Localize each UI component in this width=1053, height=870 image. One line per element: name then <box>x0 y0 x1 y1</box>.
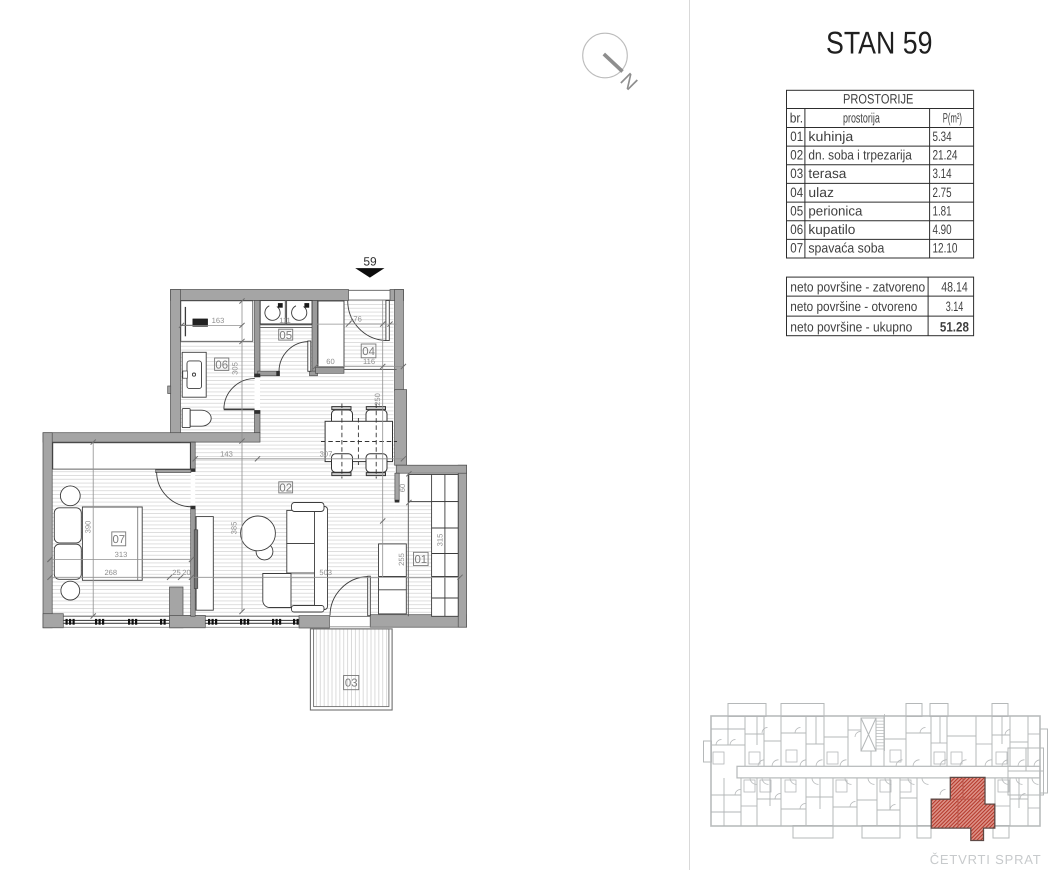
svg-text:01: 01 <box>790 129 803 144</box>
svg-text:03: 03 <box>790 166 803 181</box>
svg-text:313: 313 <box>115 550 128 559</box>
svg-text:ulaz: ulaz <box>808 185 834 200</box>
svg-text:dn. soba i trpezarija: dn. soba i trpezarija <box>808 148 912 163</box>
svg-text:02: 02 <box>790 148 803 163</box>
svg-text:STAN 59: STAN 59 <box>826 25 933 61</box>
svg-text:perionica: perionica <box>808 203 862 218</box>
svg-text:111: 111 <box>279 316 291 325</box>
svg-text:03: 03 <box>345 678 358 690</box>
svg-text:br.: br. <box>790 111 803 126</box>
svg-text:4.90: 4.90 <box>933 222 952 237</box>
svg-text:25: 25 <box>172 568 180 577</box>
svg-text:P(m²): P(m²) <box>943 111 962 126</box>
svg-text:prostorija: prostorija <box>843 111 880 126</box>
svg-text:305: 305 <box>230 362 239 375</box>
svg-text:3.14: 3.14 <box>946 299 964 314</box>
svg-text:neto površine - otvoreno: neto površine - otvoreno <box>790 299 917 314</box>
svg-text:terasa: terasa <box>808 166 846 181</box>
svg-text:neto površine - ukupno: neto površine - ukupno <box>790 320 912 335</box>
svg-text:268: 268 <box>104 568 117 577</box>
svg-text:60: 60 <box>326 357 334 366</box>
svg-text:2.75: 2.75 <box>933 185 952 200</box>
svg-text:ČETVRTI SPRAT: ČETVRTI SPRAT <box>930 852 1042 867</box>
svg-text:143: 143 <box>220 449 233 458</box>
svg-text:503: 503 <box>319 568 332 577</box>
svg-text:163: 163 <box>212 316 225 325</box>
svg-text:05: 05 <box>279 330 292 342</box>
svg-text:255: 255 <box>397 553 406 566</box>
svg-text:04: 04 <box>362 346 375 358</box>
svg-text:48.14: 48.14 <box>941 279 968 294</box>
svg-text:116: 116 <box>363 357 375 366</box>
svg-text:02: 02 <box>279 482 292 494</box>
svg-text:PROSTORIJE: PROSTORIJE <box>843 91 913 106</box>
svg-text:spavaća soba: spavaća soba <box>808 241 884 256</box>
svg-text:04: 04 <box>790 185 803 200</box>
svg-text:kuhinja: kuhinja <box>808 129 853 144</box>
svg-text:neto površine - zatvoreno: neto površine - zatvoreno <box>790 279 925 294</box>
svg-text:06: 06 <box>790 222 803 237</box>
svg-text:kupatilo: kupatilo <box>808 222 855 237</box>
svg-text:12.10: 12.10 <box>933 241 958 256</box>
svg-text:20: 20 <box>182 568 190 577</box>
svg-text:05: 05 <box>790 203 803 218</box>
svg-text:1.81: 1.81 <box>933 203 952 218</box>
svg-text:315: 315 <box>436 534 445 547</box>
svg-text:60: 60 <box>398 484 407 492</box>
svg-text:3.14: 3.14 <box>933 166 952 181</box>
svg-text:51.28: 51.28 <box>940 320 969 335</box>
svg-text:385: 385 <box>230 522 239 535</box>
svg-text:390: 390 <box>83 521 92 534</box>
svg-text:250: 250 <box>373 393 382 406</box>
svg-text:21.24: 21.24 <box>933 148 958 163</box>
svg-text:5.34: 5.34 <box>933 129 952 144</box>
svg-text:307: 307 <box>320 449 333 458</box>
svg-text:01: 01 <box>414 554 427 566</box>
svg-text:06: 06 <box>215 359 228 371</box>
svg-text:07: 07 <box>112 534 125 546</box>
svg-text:176: 176 <box>349 315 362 324</box>
svg-text:07: 07 <box>790 241 803 256</box>
svg-text:59: 59 <box>363 255 377 269</box>
